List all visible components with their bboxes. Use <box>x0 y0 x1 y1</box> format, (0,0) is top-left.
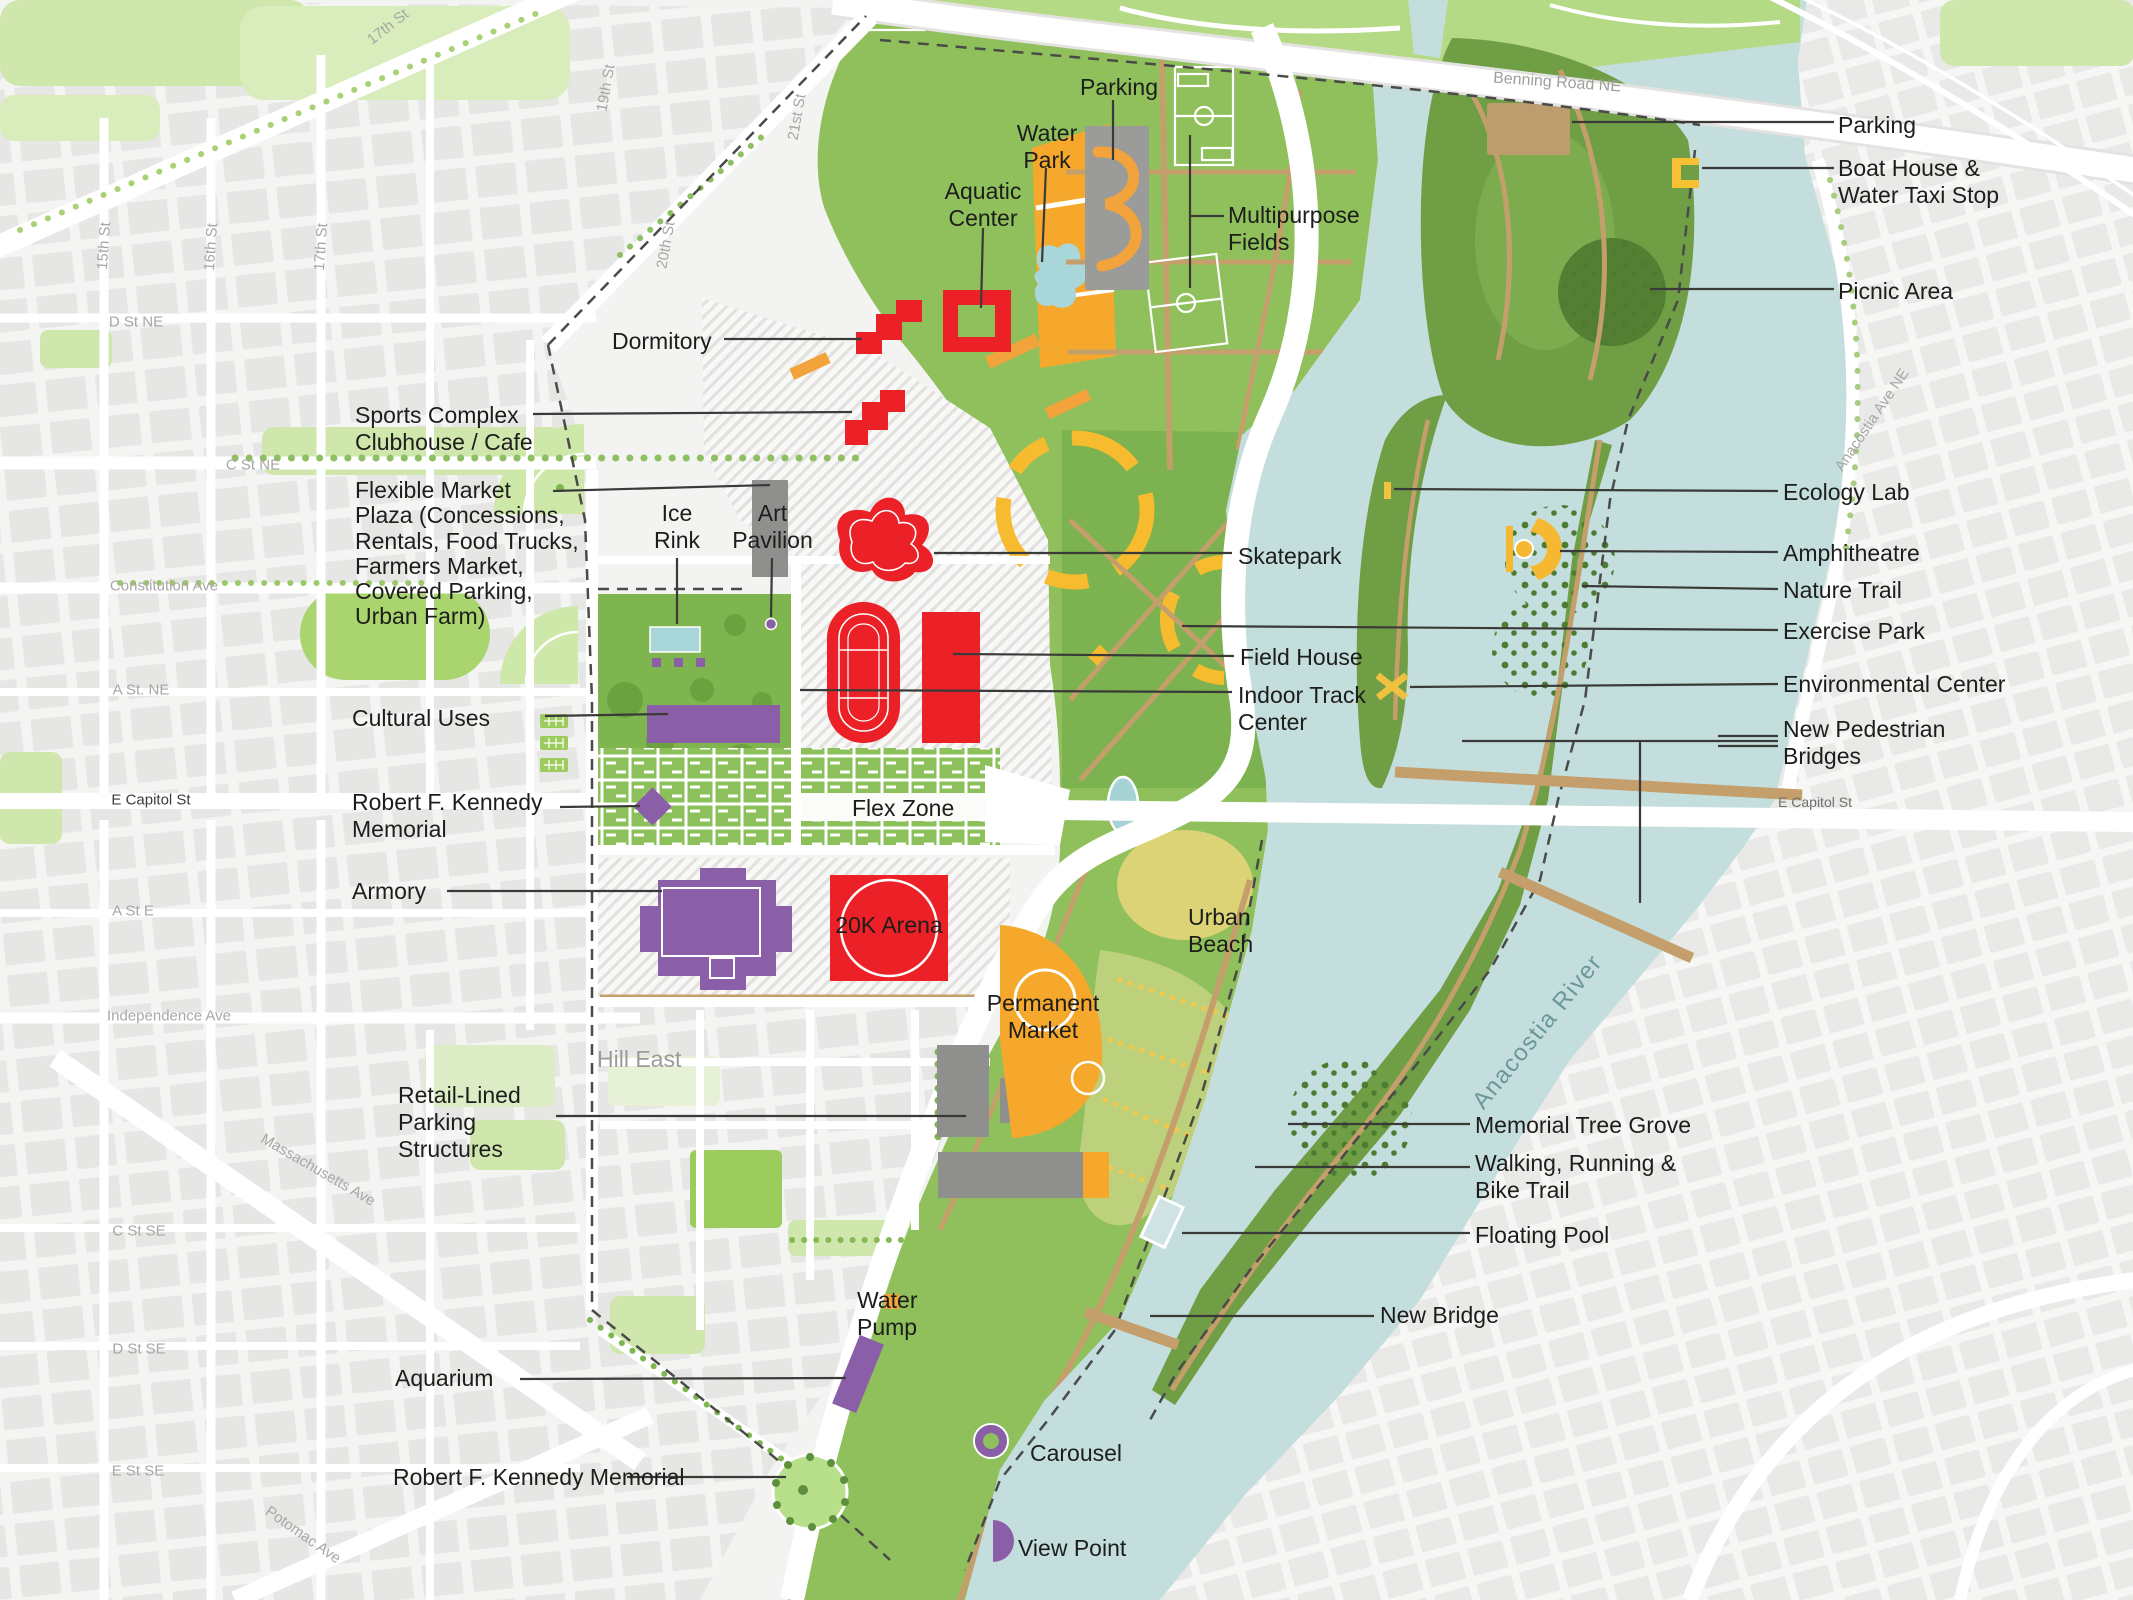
ecology-lab-icon <box>1384 482 1391 499</box>
label-exercise-park: Exercise Park <box>1783 618 1925 645</box>
label-indoor-track: Indoor Track Center <box>1238 682 1366 736</box>
label-parking-ne: Parking <box>1838 112 1916 139</box>
street-15th: 15th St <box>94 222 114 271</box>
label-pedestrian-bridges: New Pedestrian Bridges <box>1783 716 1945 770</box>
label-flex-zone: Flex Zone <box>852 795 954 822</box>
label-armory: Armory <box>352 878 426 905</box>
street-16th: 16th St <box>201 223 221 272</box>
street-c-st-se: C St SE <box>112 1223 165 1240</box>
label-ecology-lab: Ecology Lab <box>1783 479 1910 506</box>
label-nature-trail: Nature Trail <box>1783 577 1902 604</box>
label-hill-east: Hill East <box>597 1046 681 1073</box>
street-d-st-se: D St SE <box>112 1341 165 1358</box>
street-e-st-se: E St SE <box>112 1463 165 1480</box>
label-dormitory: Dormitory <box>612 328 712 355</box>
street-d-st-ne: D St NE <box>109 314 163 331</box>
ice-rink-surface <box>650 627 700 652</box>
e-capitol-bridge <box>1058 810 2133 822</box>
cultural-uses-icons <box>540 714 568 772</box>
northeast-green <box>1940 0 2133 66</box>
field-house-building <box>922 612 980 743</box>
label-environmental-center: Environmental Center <box>1783 671 2005 698</box>
label-field-house: Field House <box>1240 644 1363 671</box>
label-aquatic-center: Aquatic Center <box>936 178 1030 232</box>
aquatic-center-courtyard <box>958 305 995 337</box>
label-picnic-area: Picnic Area <box>1838 278 1953 305</box>
street-c-st-ne: C St NE <box>226 457 280 474</box>
label-multipurpose-fields: Multipurpose Fields <box>1228 202 1360 256</box>
label-aquarium: Aquarium <box>395 1365 493 1392</box>
cultural-uses-building <box>647 705 780 743</box>
label-urban-beach: Urban Beach <box>1188 904 1253 958</box>
street-a-st-ne: A St. NE <box>113 682 170 699</box>
label-amphitheatre: Amphitheatre <box>1783 540 1920 567</box>
label-water-park: Water Park <box>1008 120 1086 174</box>
label-view-point: View Point <box>1018 1535 1126 1562</box>
street-e-capitol-w: E Capitol St <box>111 792 190 809</box>
label-parking-top: Parking <box>1080 74 1156 101</box>
label-skatepark: Skatepark <box>1238 543 1342 570</box>
master-plan-map: Parking Water Park Aquatic Center Dormit… <box>0 0 2133 1600</box>
label-new-bridge: New Bridge <box>1380 1302 1499 1329</box>
label-memorial-tree-grove: Memorial Tree Grove <box>1475 1112 1691 1139</box>
street-a-st-e: A St E <box>112 903 154 920</box>
leader-aquarium <box>520 1378 846 1379</box>
island-parking-lot <box>1487 103 1570 155</box>
label-floating-pool: Floating Pool <box>1475 1222 1609 1249</box>
label-arena: 20K Arena <box>830 912 948 939</box>
label-art-pavilion: Art Pavilion <box>725 500 820 554</box>
label-rfk-memorial-south: Robert F. Kennedy Memorial <box>393 1464 684 1491</box>
label-retail-parking: Retail-Lined Parking Structures <box>398 1082 521 1163</box>
label-boat-house: Boat House & Water Taxi Stop <box>1838 155 1999 209</box>
label-permanent-market: Permanent Market <box>975 990 1111 1044</box>
label-ice-rink: Ice Rink <box>645 500 709 554</box>
street-e-capitol-e: E Capitol St <box>1778 794 1852 810</box>
armory-annex <box>710 958 734 978</box>
street-constitution: Constitution Ave <box>110 578 218 595</box>
street-independence: Independence Ave <box>107 1008 231 1025</box>
label-rfk-memorial: Robert F. Kennedy Memorial <box>352 789 543 843</box>
boat-house-icon <box>1672 158 1699 188</box>
leader-amphitheatre <box>1560 551 1778 552</box>
label-flexible-market: Flexible Market Plaza (Concessions, Rent… <box>355 478 579 630</box>
label-walking-trail: Walking, Running & Bike Trail <box>1475 1150 1676 1204</box>
art-pavilion-marker <box>766 619 777 630</box>
label-sports-complex: Sports Complex Clubhouse / Cafe <box>355 402 533 456</box>
label-water-pump: Water Pump <box>857 1287 918 1341</box>
street-17th: 17th St <box>311 223 331 272</box>
leader-art-pavilion <box>771 558 772 617</box>
leader-rfk-memorial <box>560 806 640 807</box>
label-carousel: Carousel <box>1030 1440 1122 1467</box>
label-cultural-uses: Cultural Uses <box>352 705 490 732</box>
running-track <box>827 602 900 743</box>
